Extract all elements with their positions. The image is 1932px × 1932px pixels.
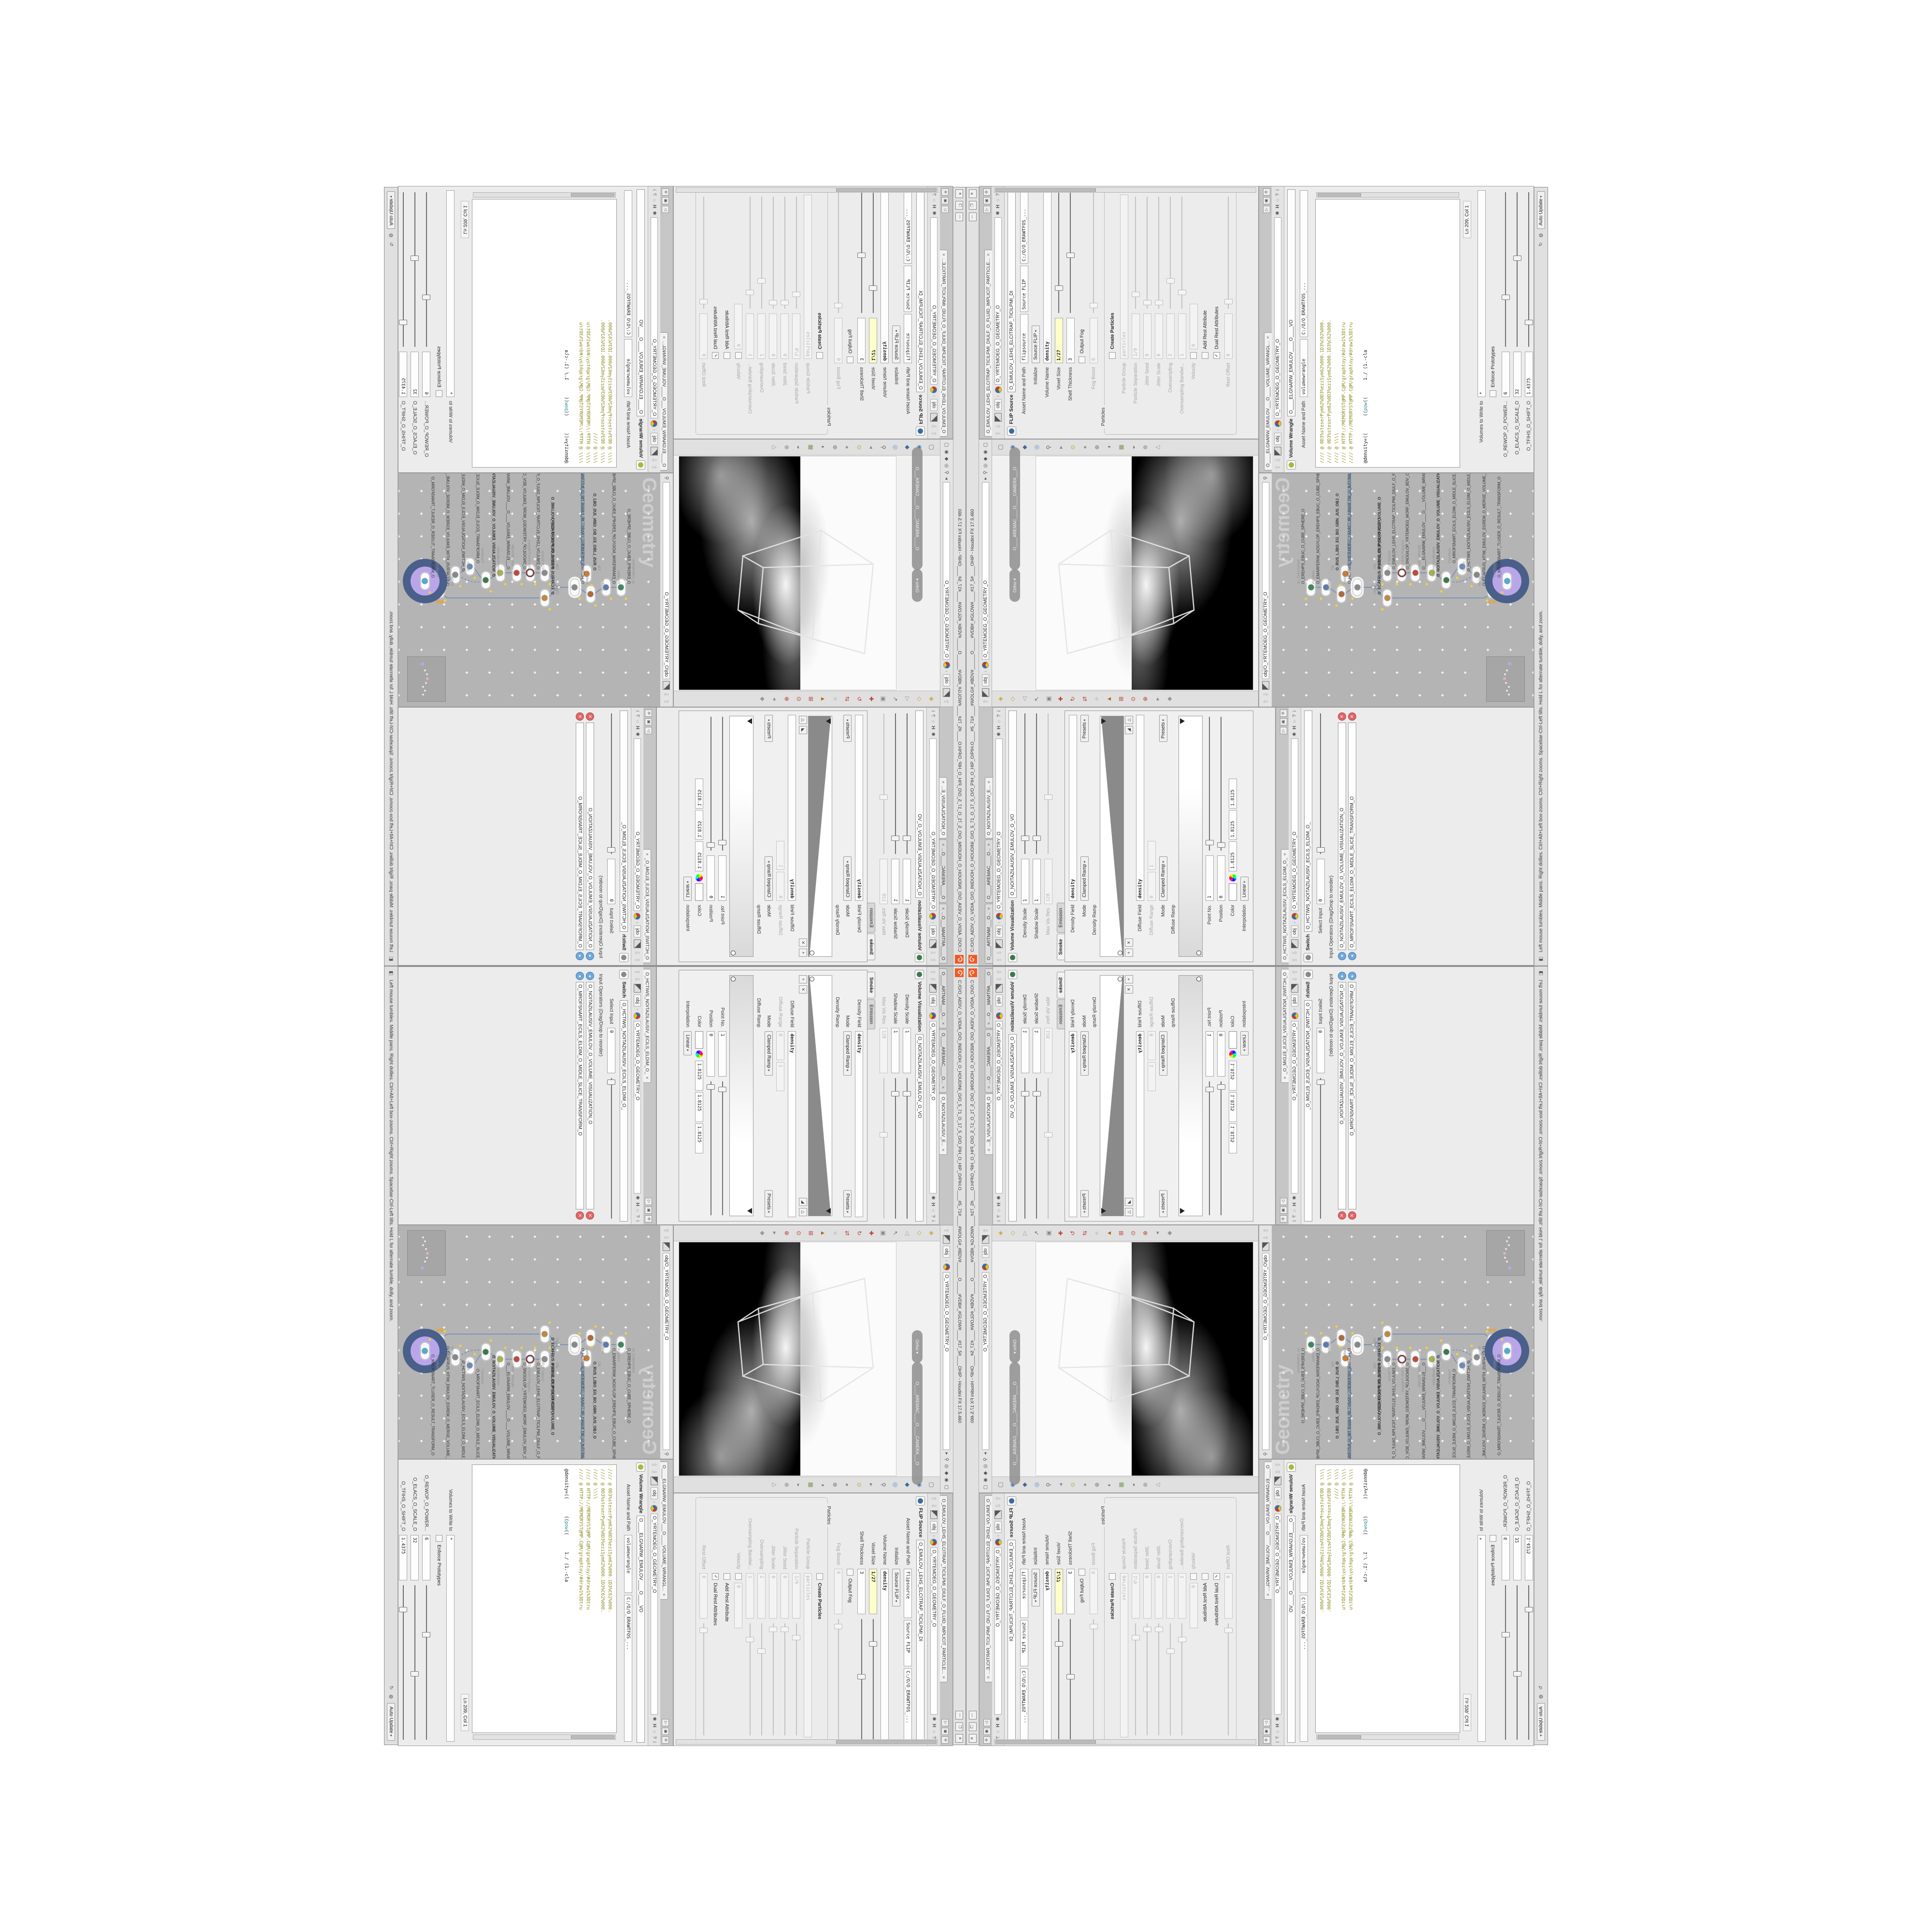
breadcrumb-obj[interactable]: obj [930,1521,938,1533]
shadow-scale-slider[interactable] [1032,711,1041,854]
take-slate-icon[interactable] [995,984,1003,993]
network-path-field[interactable]: obj/O_YRTEMOEG_O_GEOMETRY_O [1262,1253,1269,1450]
take-slate-icon[interactable] [634,939,641,948]
search-icon[interactable]: ◌ [652,199,657,202]
breadcrumb-obj[interactable]: obj [1291,925,1298,938]
remove-input-icon[interactable]: ✕ [1338,712,1346,721]
breadcrumb-obj[interactable]: obj [994,399,1002,411]
tab-switch-pane[interactable]: O_HCTIWS_NOITAZILAUSIV_ECILS_ELDIM_O_✕ [1281,849,1289,963]
tab-close-icon[interactable]: ✕ [987,1086,991,1089]
auto-update-dropdown[interactable]: Auto Update [1537,191,1545,229]
toolbar-icon[interactable]: ⚲ [879,442,888,452]
jitter-seed-slider[interactable] [781,195,789,309]
fog-boost-slider[interactable] [834,1619,843,1742]
nav-down-icon[interactable]: ⇩ [664,1235,670,1240]
tab-mantra[interactable]: O____ARTNAM___O...✕ [985,968,993,1028]
take-slate-icon[interactable] [651,1477,658,1485]
breadcrumb-obj[interactable]: obj [930,399,938,411]
ramp-flag-marker[interactable] [747,718,752,724]
rest-offset-field[interactable]: 0 [700,313,708,359]
pane-play-icon[interactable]: ▷ [662,1719,669,1726]
flip-node-name-field[interactable]: O_EMULOV_LEHS_ELCITRAP_TICILPMI_DI [1008,1540,1016,1743]
color-b-field[interactable]: 1.8125 [696,1123,704,1153]
scale-slider[interactable] [1513,190,1521,347]
switch-node-name-field[interactable]: O_HCTIWS_NOITAZILAUSIV_ECILS_ELDIM_O_ [620,710,628,932]
tab-close-icon[interactable]: ✕ [1266,1593,1270,1596]
particle-separation-slider[interactable] [1131,195,1140,309]
tab-close-icon[interactable]: ✕ [987,1148,991,1151]
reorder-handle-icon[interactable]: ◂ [1348,952,1356,960]
asset-name-field[interactable]: flipsource [1020,314,1028,363]
velocity-checkbox[interactable] [735,1573,742,1580]
play-icon[interactable]: ▸ [983,477,988,480]
jitter-seed-slider[interactable] [1143,1623,1151,1737]
take-slate-icon[interactable] [982,688,989,697]
vex-code-editor[interactable]: //// @ 0D3%steserPym62%0D3%eziSym62%000.… [472,199,617,468]
voxel-size-slider[interactable] [1054,190,1063,313]
gear-icon[interactable]: ✱ [652,1717,657,1721]
dual-rest-checkbox[interactable]: ✓ [1213,1573,1220,1580]
add-rest-checkbox[interactable] [1202,352,1208,359]
remove-input-icon[interactable]: ✕ [576,1211,584,1220]
fog-boost-slider[interactable] [1089,190,1098,313]
toolbar-icon[interactable]: ↻ [1068,694,1077,704]
help-icon[interactable]: ? [930,1214,936,1218]
jitter-seed-field[interactable]: 0 [781,313,789,359]
density-scale-field[interactable]: 1 [1021,1028,1029,1073]
fog-boost-slider[interactable] [834,190,843,313]
asset-path-field[interactable]: C:/O/O_ERAWTFOS_... [904,190,912,264]
info-icon[interactable]: i [1292,1220,1297,1222]
select-input-field[interactable]: 0 [1317,859,1325,904]
input-operator-1[interactable]: O_NOITAZILAUSIV_EMULOV_O_VOLUME_VISUALIZ… [586,723,594,950]
diffuse-presets-dropdown[interactable]: Presets [765,715,773,742]
info-icon[interactable]: i [996,1220,1002,1222]
orbs-icon[interactable]: ◉ [944,1477,950,1483]
toolbar-icon[interactable]: ▸ [1056,442,1065,452]
switch-node-path[interactable]: O_YRTEMOEG_O_GEOMETRY_O [634,1021,641,1193]
select-input-slider[interactable] [1316,1078,1325,1221]
wrangle-node-path[interactable]: O_YRTEMOEG_O_GEOMETRY_O [651,217,658,418]
toolbar-icon[interactable]: ◆ [1165,1228,1174,1238]
shift-slider[interactable] [1524,190,1533,347]
network-canvas[interactable]: Geometry [1272,473,1534,707]
toolbar-icon[interactable]: ⊙ [1068,442,1077,452]
toolbar-icon[interactable]: ✚ [1056,1228,1065,1238]
rest-offset-slider[interactable] [699,1623,708,1737]
velocity-checkbox[interactable] [1190,1573,1197,1580]
minimize-button[interactable]: — [956,213,964,221]
toolbar-icon[interactable]: ↖ [891,1228,900,1238]
help-icon[interactable]: ? [996,1214,1002,1218]
toolbar-icon[interactable]: ◑ [1105,1480,1113,1490]
toolbar-icon[interactable]: ◑ [819,442,827,452]
gear-icon[interactable]: ✱ [1292,732,1297,737]
density-scale-slider[interactable] [1021,1078,1029,1221]
info-icon[interactable]: i [996,710,1002,712]
nav-up-icon[interactable]: ⇧ [944,1228,950,1233]
nav-up-icon[interactable]: ⇧ [982,699,989,704]
color-g-field[interactable]: 1.8125 [1229,810,1237,840]
diffuse-field-field[interactable]: density [788,715,796,901]
flip-node-name-field[interactable]: O_EMULOV_LEHS_ELCITRAP_TICILPMI_DI [1008,189,1016,392]
nav-down-icon[interactable]: ⇩ [930,950,936,955]
tab-camera[interactable]: O____AREMAC____O...✕ [985,839,993,902]
color-b-field[interactable]: 1.8125 [1229,779,1237,809]
tab-close-icon[interactable]: ✕ [941,1086,945,1089]
reorder-handle-icon[interactable]: ◂ [1338,952,1346,960]
search-icon[interactable]: ◌ [995,199,1001,202]
pane-move-icon[interactable]: ✣ [983,1736,991,1744]
shell-thickness-field[interactable]: 3 [858,318,866,363]
toolbar-icon[interactable]: ⇄ [1080,694,1089,704]
close-button[interactable]: ✕ [956,189,964,198]
diffuse-range-min-field[interactable]: 0 [1148,1031,1156,1060]
gear-icon[interactable]: ✱ [930,1195,936,1200]
nav-down-icon[interactable]: ⇩ [664,692,670,697]
gear-icon[interactable]: ✱ [1292,1195,1297,1200]
refresh-icon[interactable]: ↻ [388,242,394,247]
asset-name-field[interactable]: flipsource [1020,1569,1028,1618]
tab-close-icon[interactable]: ✕ [1266,336,1270,339]
search-icon[interactable]: ◌ [930,1208,936,1212]
nav-up-icon[interactable]: ⇧ [931,1496,937,1501]
toolbar-icon[interactable]: ◇ [1008,694,1017,704]
asset-name-field[interactable]: volumewrangle [625,339,633,397]
tab-smoke[interactable]: Smoke [867,972,875,998]
density-scale-slider[interactable] [1021,711,1029,854]
max-vis-res-field[interactable]: 128 [1044,1028,1052,1073]
volumes-field[interactable]: * [1477,190,1486,397]
nav-up-icon[interactable]: ⇧ [995,431,1001,436]
tab-flip-source-pane[interactable]: O_EMULOV_LEHS_ELCITRAP_TICILPMI_DIULF_O_… [940,1495,948,1682]
toolbar-icon[interactable]: △ [1153,442,1162,452]
add-rest-checkbox[interactable] [1202,1573,1208,1580]
jitter-seed-field[interactable]: 0 [1143,313,1151,359]
pane-play-icon[interactable]: ▷ [941,1719,949,1726]
gear-icon[interactable]: ✱ [996,1195,1002,1200]
ramp-point-marker[interactable] [1196,977,1201,981]
viewport-canvas[interactable]: ◈◇◁↖▣✚↻⇄✳▲⊞⊙⊕▸◆ ▢◉◆◎⚲▸⊙●⊕◑▦◒⊗△ [992,440,1258,707]
reorder-handle-icon[interactable]: ◂ [586,952,594,960]
toolbar-icon[interactable]: ▸ [770,1228,779,1238]
velocity-field[interactable]: 0 [735,304,743,349]
toolbar-icon[interactable]: ◈ [996,694,1005,704]
help-icon[interactable]: ? [930,714,936,718]
network-node[interactable]: TransformO_MROFSNART_TLUSER_O_RESULT_TRA… [421,572,430,590]
toolbar-icon[interactable]: ⊙ [855,1480,864,1490]
tab-volume-wrangle-pane[interactable]: O____ELGNARW_EMULOV___O____VOLUME_WRANGL… [1264,332,1272,470]
velocity-field[interactable]: 0 [1190,304,1198,349]
create-particles-checkbox[interactable] [816,352,823,359]
nav-up-icon[interactable]: ⇧ [634,957,640,963]
toolbar-icon[interactable]: ▦ [807,442,815,452]
color-r-field[interactable]: 1.8125 [696,841,704,871]
toolbar-icon[interactable]: ⚲ [1044,442,1053,452]
asset-name-field[interactable]: flipsource [904,1569,912,1618]
max-vis-res-field[interactable]: 128 [880,1028,888,1073]
breadcrumb-obj[interactable]: obj [651,433,658,445]
toolbar-icon[interactable]: ↖ [1032,1228,1041,1238]
take-slate-icon[interactable] [943,1235,951,1244]
pane-maximize-icon[interactable]: ▣ [983,197,991,204]
select-input-slider[interactable] [1316,711,1325,854]
point-no-slider[interactable] [718,1081,727,1217]
info-icon[interactable]: i [635,710,640,712]
cube-icon[interactable]: ◆ [944,456,950,461]
cube-icon[interactable]: ◆ [983,1471,988,1476]
info-icon[interactable]: i [1292,710,1297,712]
create-particles-checkbox[interactable] [1109,1573,1116,1580]
tab-emission[interactable]: Emission [1057,999,1065,1030]
enforce-prototypes-checkbox[interactable] [1490,1535,1496,1542]
ramp-point-marker[interactable] [731,977,736,981]
toolbar-icon[interactable]: ⊕ [1141,694,1150,704]
viewport-node-path[interactable]: O_YRTEMOEG_O_GEOMETRY_O [943,1272,951,1450]
tab-emission[interactable]: Emission [867,999,875,1030]
diffuse-ramp-widget[interactable] [1179,975,1203,1216]
help-icon[interactable]: ? [995,1735,1001,1739]
network-path-field[interactable]: obj/O_YRTEMOEG_O_GEOMETRY_O [663,482,670,679]
diffuse-mode-dropdown[interactable]: Clamped Ramp [1159,856,1167,901]
minimize-button[interactable]: — [956,1711,964,1719]
viewport-node-path[interactable]: O_YRTEMOEG_O_GEOMETRY_O [982,482,989,660]
input-operator-2[interactable]: O_MROFSNART_ECILS_ELDIM_O_MIDLE_SLICE_TR… [1348,982,1356,1209]
oversampling-bandwidth-field[interactable]: 1 [1178,1573,1186,1619]
nav-down-icon[interactable]: ⇩ [1275,1469,1281,1475]
toolbar-icon[interactable]: ↻ [855,1228,864,1238]
toolbar-icon[interactable]: ◆ [758,694,767,704]
info-icon[interactable]: i [930,1220,936,1222]
remove-input-icon[interactable]: ✕ [576,712,584,721]
output-fog-checkbox[interactable] [1079,356,1085,363]
tab-close-icon[interactable]: ✕ [987,907,991,910]
toolbar-icon[interactable]: ▣ [1044,1228,1053,1238]
nav-up-icon[interactable]: ⇧ [995,1496,1001,1501]
nav-down-icon[interactable]: ⇩ [995,1503,1001,1508]
breadcrumb-obj[interactable]: obj [994,1521,1002,1533]
position-field[interactable]: 0 [707,1031,715,1077]
ramp-flag-marker[interactable] [1180,1208,1185,1214]
voxel-size-field[interactable]: 1/27 [1055,318,1063,363]
toolbar-icon[interactable]: ⊙ [1129,1228,1137,1238]
toolbar-icon[interactable]: ◎ [891,442,900,452]
point-no-field[interactable]: 1 [719,1031,727,1077]
tab-close-icon[interactable]: ✕ [662,1593,666,1596]
asset-name-field[interactable]: volumewrangle [1300,1535,1308,1593]
power-field[interactable]: 6 [423,1535,431,1580]
ramp-delete-button[interactable]: ✕ [799,938,807,947]
toolbar-icon[interactable]: ⊙ [795,1228,803,1238]
breadcrumb-obj[interactable]: obj [1274,433,1281,445]
take-slate-icon[interactable] [929,984,937,993]
pane-maximize-icon[interactable]: ▣ [983,1728,991,1735]
nav-up-icon[interactable]: ⇧ [996,969,1002,975]
volume-name-field[interactable]: density [881,190,889,363]
asset-type-field[interactable]: Source FLIP [1020,266,1028,312]
velocity-checkbox[interactable] [1190,352,1197,359]
toolbar-icon[interactable]: ▢ [927,1480,936,1490]
toolbar-icon[interactable]: ⊙ [1129,694,1137,704]
max-vis-res-slider[interactable] [1044,1078,1052,1221]
volumes-field[interactable]: * [447,190,455,397]
maximize-icon[interactable]: ▢ [983,1485,988,1490]
dual-rest-checkbox[interactable]: ✓ [712,1573,719,1580]
interpolation-dropdown[interactable]: Linear [1240,877,1249,901]
asset-path-field[interactable]: C:/O/O_ERAWTFOS_... [904,1668,912,1742]
viewport-node-path[interactable]: O_YRTEMOEG_O_GEOMETRY_O [982,1272,989,1450]
shadow-scale-field[interactable]: 1 [892,859,900,904]
nav-up-icon[interactable]: ⇧ [982,1228,989,1233]
ramp-add-button[interactable]: + [1125,949,1133,957]
diffuse-ramp-widget[interactable] [1179,716,1203,957]
color-b-field[interactable]: 1.8125 [696,779,704,809]
play-icon[interactable]: ▸ [944,1452,950,1455]
diffuse-range-min-field[interactable]: 0 [777,872,785,901]
pane-play-icon[interactable]: ▷ [1263,206,1270,213]
nav-down-icon[interactable]: ⇩ [996,950,1002,955]
volume-name-field[interactable]: density [881,1569,889,1742]
nav-down-icon[interactable]: ⇩ [651,457,657,463]
search-icon[interactable]: ◌ [996,720,1002,724]
oversampling-slider[interactable] [1166,195,1175,309]
toolbar-icon[interactable]: ▸ [1153,1228,1162,1238]
shadow-scale-field[interactable]: 1 [1033,859,1041,904]
volviz-node-name-field[interactable]: O_NOITAZILAUSIV_EMULOV_O_VO [1009,1034,1017,1222]
scale-field[interactable]: 32 [411,1535,419,1580]
toolbar-icon[interactable]: ↻ [855,694,864,704]
network-node[interactable]: ClipO_ECAFRUS_PILC_O_CLIP_SURFACE_O [1383,1325,1392,1343]
toolbar-icon[interactable]: ⊕ [782,694,791,704]
toolbar-icon[interactable]: ⇄ [1080,1228,1089,1238]
density-ramp-widget[interactable] [1100,975,1124,1216]
network-node[interactable]: VolumeVisualizationO_NOITAZILAUSIV_EMULO… [482,1343,491,1361]
search-icon[interactable]: ◌ [635,1208,640,1212]
ramp-point-marker[interactable] [810,977,814,981]
search-icon[interactable]: ◌ [635,720,640,724]
search-icon[interactable]: ◌ [1292,1208,1297,1212]
file-node-path-label[interactable]: JBO.M03.PETS.TRPOLS_O_5SUNEG_O_GENUS5_O_… [581,1366,584,1459]
search-icon[interactable]: ◌ [931,1730,937,1733]
close-button[interactable]: ✕ [969,189,977,198]
shift-field[interactable]: 1.4375 [1525,1535,1533,1580]
toolbar-icon[interactable]: ◒ [1129,442,1137,452]
tab-close-icon[interactable]: ✕ [986,1676,991,1679]
toolbar-icon[interactable]: ⊙ [795,694,803,704]
tab-volume-wrangle-pane[interactable]: O____ELGNARW_EMULOV___O____VOLUME_WRANGL… [660,332,668,470]
target-icon[interactable]: ◎ [944,463,950,469]
pane-play-icon[interactable]: ▷ [941,206,949,213]
tab-close-icon[interactable]: ✕ [941,1022,945,1025]
ramp-tri-button[interactable]: △ [1125,1208,1133,1216]
target-icon[interactable]: ◎ [944,1463,950,1469]
particle-separation-field[interactable]: 1/9 [1132,1573,1140,1619]
color-g-field[interactable]: 1.8125 [1229,1092,1237,1122]
gear-icon[interactable]: ✱ [996,732,1002,737]
pane-play-icon[interactable]: ▷ [645,727,652,734]
toolbar-icon[interactable]: ◎ [1032,442,1041,452]
toolbar-icon[interactable]: ▢ [927,442,936,452]
viewport-canvas[interactable]: ◈◇◁↖▣✚↻⇄✳▲⊞⊙⊕▸◆ ▢◉◆◎⚲▸⊙●⊕◑▦◒⊗△ [674,440,940,707]
take-slate-icon[interactable] [1274,447,1281,455]
gear-icon[interactable]: ✱ [931,211,937,215]
oversampling-bandwidth-field[interactable]: 1 [1178,313,1186,359]
toolbar-icon[interactable]: ◈ [996,1228,1005,1238]
tab-close-icon[interactable]: ✕ [941,253,946,256]
tab-close-icon[interactable]: ✕ [941,781,945,784]
breadcrumb-obj[interactable]: obj [995,925,1003,938]
flip-pane-scrollbar[interactable] [994,1739,1256,1745]
pane-maximize-icon[interactable]: ▣ [662,1728,669,1735]
power-field[interactable]: 6 [1502,352,1510,397]
take-slate-icon[interactable] [929,939,937,948]
pane-maximize-icon[interactable]: ▣ [1263,197,1270,204]
toolbar-icon[interactable]: △ [1153,1480,1162,1490]
help-icon[interactable]: ? [652,1735,657,1739]
search-icon[interactable]: ◌ [1275,1730,1280,1733]
position-field[interactable]: 0 [1217,855,1225,901]
oversampling-slider[interactable] [757,1623,766,1737]
interpolation-dropdown[interactable]: Linear [684,877,692,901]
select-input-field[interactable]: 0 [608,859,616,904]
nav-up-icon[interactable]: ⇧ [1275,1462,1281,1467]
toolbar-icon[interactable]: ▲ [819,694,827,704]
breadcrumb-obj[interactable]: obj [943,674,951,686]
scale-field[interactable]: 32 [411,352,419,397]
pane-move-icon[interactable]: ✣ [941,1736,949,1744]
select-input-slider[interactable] [607,711,616,854]
toolbar-icon[interactable]: ✳ [831,1228,839,1238]
flip-node-name-field[interactable]: O_EMULOV_LEHS_ELCITRAP_TICILPMI_DI [917,189,925,392]
pane-play-icon[interactable]: ▷ [645,1198,652,1205]
tab-volume-wrangle-pane[interactable]: O____ELGNARW_EMULOV___O____VOLUME_WRANGL… [660,1462,668,1600]
toolbar-icon[interactable]: ✳ [1093,1228,1101,1238]
toolbar-icon[interactable]: ⚲ [1044,1480,1053,1490]
toolbar-icon[interactable]: ✳ [831,694,839,704]
diffuse-mode-dropdown[interactable]: Clamped Ramp [765,1031,773,1076]
oversampling-slider[interactable] [1166,1623,1175,1737]
help-icon[interactable]: ? [1292,714,1297,718]
cube-icon[interactable]: ◆ [983,456,988,461]
toolbar-icon[interactable]: ◁ [1020,694,1029,704]
tab-switch-pane[interactable]: O_HCTIWS_NOITAZILAUSIV_ECILS_ELDIM_O_✕ [643,969,651,1083]
tab-smoke[interactable]: Smoke [1057,972,1065,998]
toolbar-icon[interactable]: ⊞ [807,694,815,704]
nav-up-icon[interactable]: ⇧ [944,699,950,704]
power-slider[interactable] [422,1585,431,1742]
toolbar-icon[interactable]: ◆ [1020,442,1029,452]
tab-visualization[interactable]: O_NOITAZILAUSIV_E...✕ [985,777,993,838]
enforce-prototypes-checkbox[interactable] [436,390,442,397]
volumes-field[interactable]: * [1477,1535,1486,1742]
asset-path-field[interactable]: C:/O/O_ERAWTFOS_... [1300,1595,1308,1742]
density-presets-dropdown[interactable]: Presets [844,1190,852,1217]
diffuse-field-field[interactable]: density [1136,1031,1144,1217]
shift-field[interactable]: 1.4375 [399,1535,408,1580]
jitter-scale-field[interactable]: 0 [769,313,778,359]
tab-mantra[interactable]: O____ARTNAM___O...✕ [939,968,947,1028]
particle-separation-field[interactable]: 1/9 [793,313,801,359]
jitter-seed-slider[interactable] [1143,195,1151,309]
reorder-handle-icon[interactable]: ◂ [576,952,584,960]
oversampling-slider[interactable] [757,195,766,309]
fog-boost-field[interactable]: 0 [835,318,843,363]
switch-node-path[interactable]: O_YRTEMOEG_O_GEOMETRY_O [634,739,641,911]
reorder-handle-icon[interactable]: ◂ [1338,972,1346,980]
toolbar-icon[interactable]: ◑ [819,1480,827,1490]
toolbar-icon[interactable]: ◎ [1032,1480,1041,1490]
oversampling-field[interactable]: 2 [758,313,766,359]
